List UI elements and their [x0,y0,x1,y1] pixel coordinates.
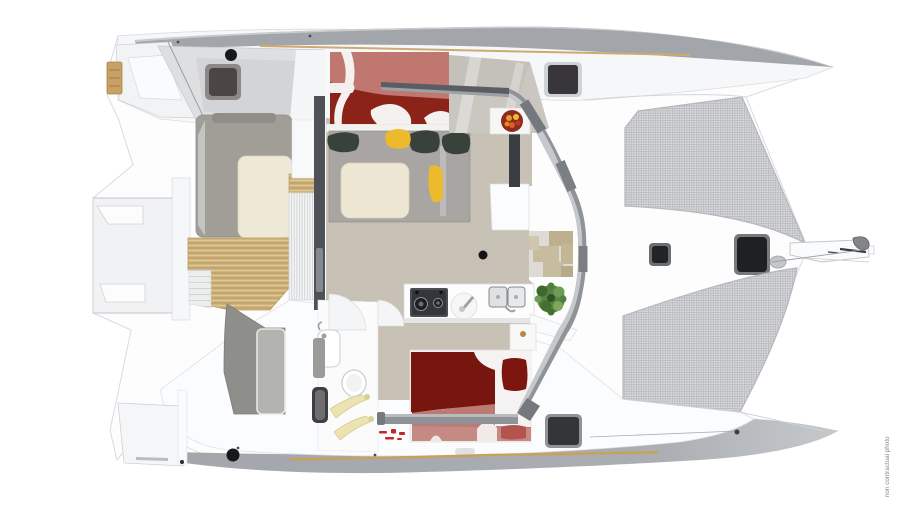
svg-text:non contractual photo: non contractual photo [884,436,891,497]
